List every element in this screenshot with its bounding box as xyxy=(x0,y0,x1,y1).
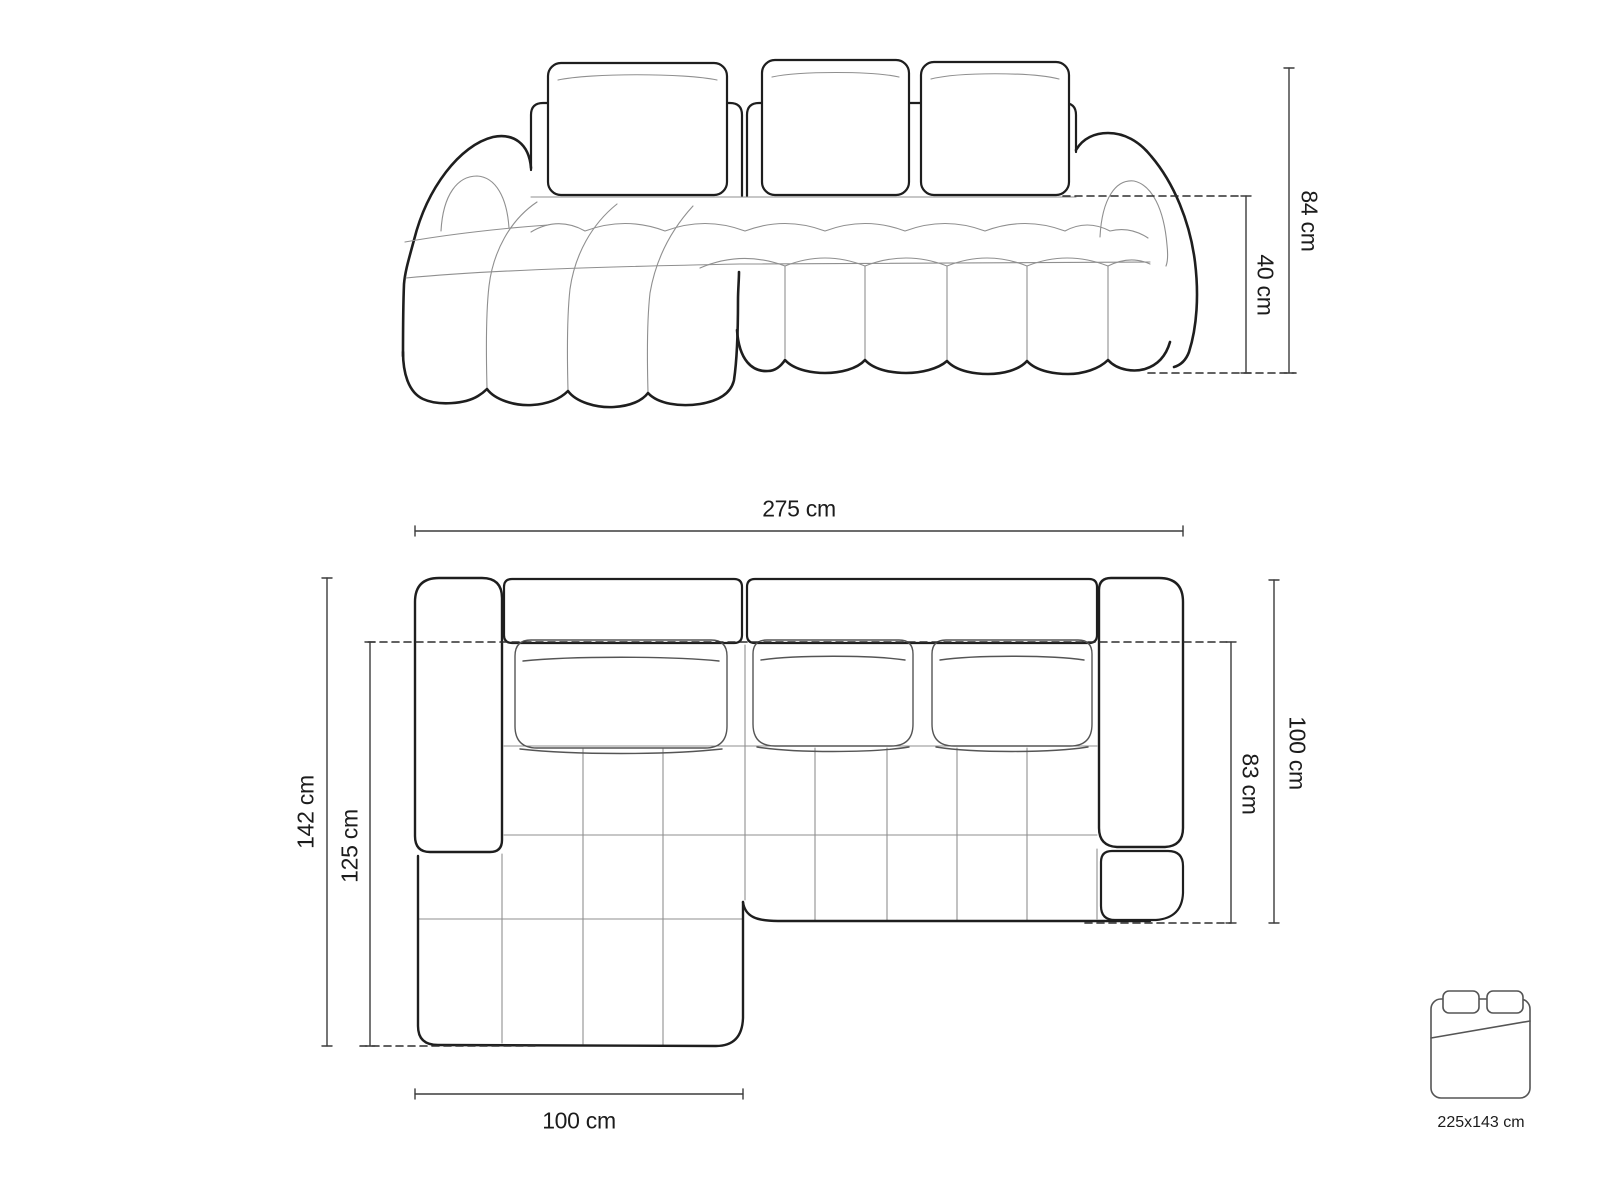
label-overall-height: 84 cm xyxy=(1296,190,1323,251)
right-arm-inner-line xyxy=(1100,181,1168,266)
seat-tufting-lines xyxy=(405,197,1150,392)
label-body-total-depth: 100 cm xyxy=(1284,716,1311,790)
seat-bottom-outline xyxy=(737,330,1170,374)
pillow-3 xyxy=(921,62,1069,195)
back-pillows xyxy=(548,60,1069,195)
bed-pillow-left xyxy=(1443,991,1479,1013)
plan-backrest-right xyxy=(747,579,1097,643)
plan-dashed-lines xyxy=(360,642,1231,1046)
plan-front-edge xyxy=(743,902,1150,921)
bed-mattress xyxy=(1431,999,1530,1098)
left-arm-outline xyxy=(403,136,531,356)
pillow-2 xyxy=(762,60,909,195)
label-sleeping-area-size: 225x143 cm xyxy=(1437,1114,1524,1132)
plan-cushion-1 xyxy=(515,640,727,748)
label-overall-width: 275 cm xyxy=(762,496,836,523)
sofa-dimension-diagram: 84 cm 40 cm 275 cm 142 cm 125 cm 83 cm 1… xyxy=(0,0,1600,1200)
top-view-drawing xyxy=(322,526,1279,1099)
label-chaise-inner-depth: 125 cm xyxy=(337,809,364,883)
chaise-front-outline xyxy=(403,272,739,407)
label-seat-height: 40 cm xyxy=(1252,254,1279,315)
plan-grid-lines xyxy=(418,645,1097,1045)
label-body-inner-depth: 83 cm xyxy=(1237,753,1264,814)
plan-right-arm-front xyxy=(1101,851,1183,920)
label-chaise-total-depth: 142 cm xyxy=(293,775,320,849)
bed-icon xyxy=(1431,991,1530,1098)
left-arm-inner-line xyxy=(441,176,509,231)
plan-backrest-left xyxy=(504,579,742,643)
label-chaise-width: 100 cm xyxy=(542,1108,616,1135)
plan-seat-cushions xyxy=(515,640,1092,754)
sofa-diagram-drawing xyxy=(0,0,1600,1200)
bed-blanket-line xyxy=(1431,1021,1530,1038)
plan-left-arm xyxy=(415,578,502,852)
right-arm-outline xyxy=(1076,133,1197,367)
front-view-drawing xyxy=(403,60,1296,407)
plan-right-arm xyxy=(1099,578,1183,847)
plan-dimension-lines xyxy=(322,526,1279,1099)
bed-pillow-right xyxy=(1487,991,1523,1013)
pillow-1 xyxy=(548,63,727,195)
front-view-dimension-lines xyxy=(1241,68,1294,373)
plan-chaise-outline xyxy=(418,856,743,1046)
